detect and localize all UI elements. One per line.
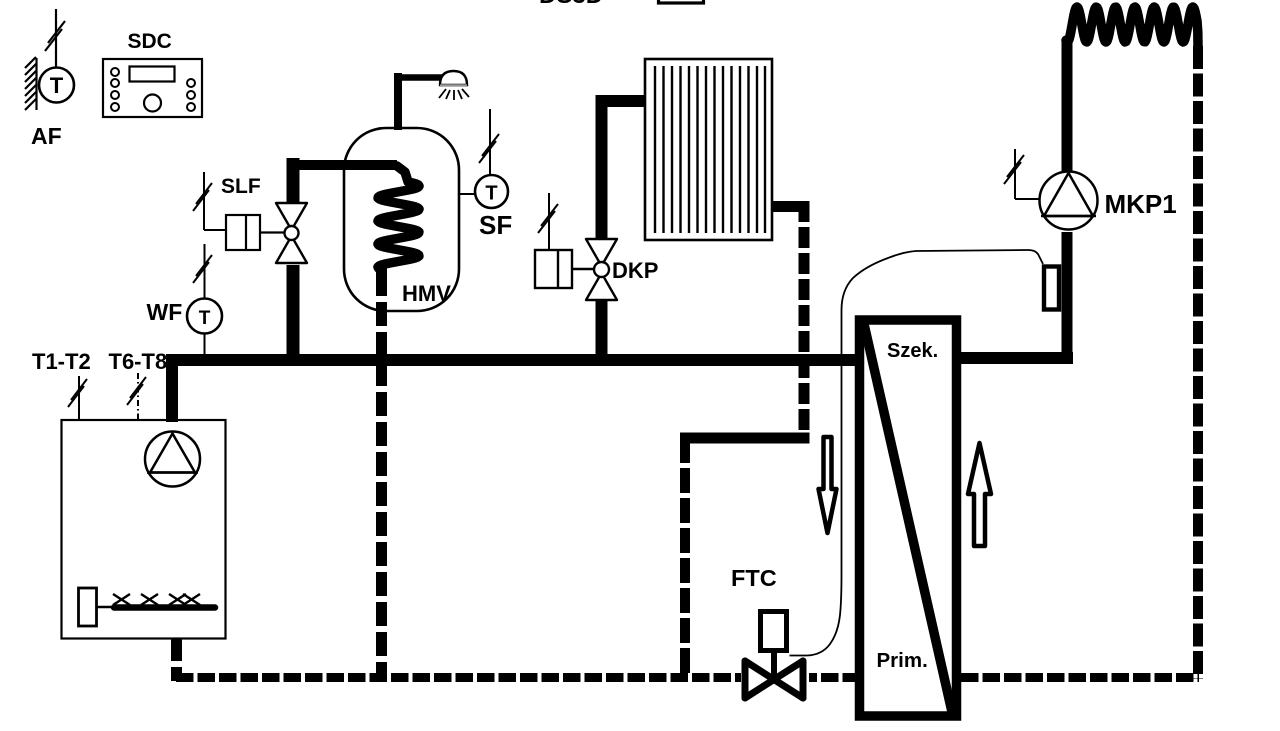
svg-text:MKP1: MKP1 bbox=[1105, 189, 1177, 219]
svg-text:AF: AF bbox=[31, 123, 62, 149]
svg-text:T6-T8: T6-T8 bbox=[109, 349, 168, 374]
svg-text:SDC: SDC bbox=[128, 30, 172, 53]
svg-text:T1-T2: T1-T2 bbox=[32, 349, 91, 374]
svg-text:WF: WF bbox=[147, 299, 183, 325]
svg-text:T: T bbox=[50, 73, 64, 98]
svg-text:Prim.: Prim. bbox=[877, 649, 928, 672]
svg-text:Szek.: Szek. bbox=[887, 340, 938, 362]
svg-text:T: T bbox=[199, 308, 211, 329]
svg-text:SF: SF bbox=[479, 210, 512, 240]
svg-text:SLF: SLF bbox=[221, 175, 261, 198]
svg-text:DS3D: DS3D bbox=[539, 0, 603, 9]
svg-text:FTC: FTC bbox=[731, 565, 777, 591]
svg-text:T: T bbox=[485, 183, 497, 205]
svg-text:DKP: DKP bbox=[612, 258, 658, 283]
svg-text:HMV: HMV bbox=[402, 281, 451, 306]
